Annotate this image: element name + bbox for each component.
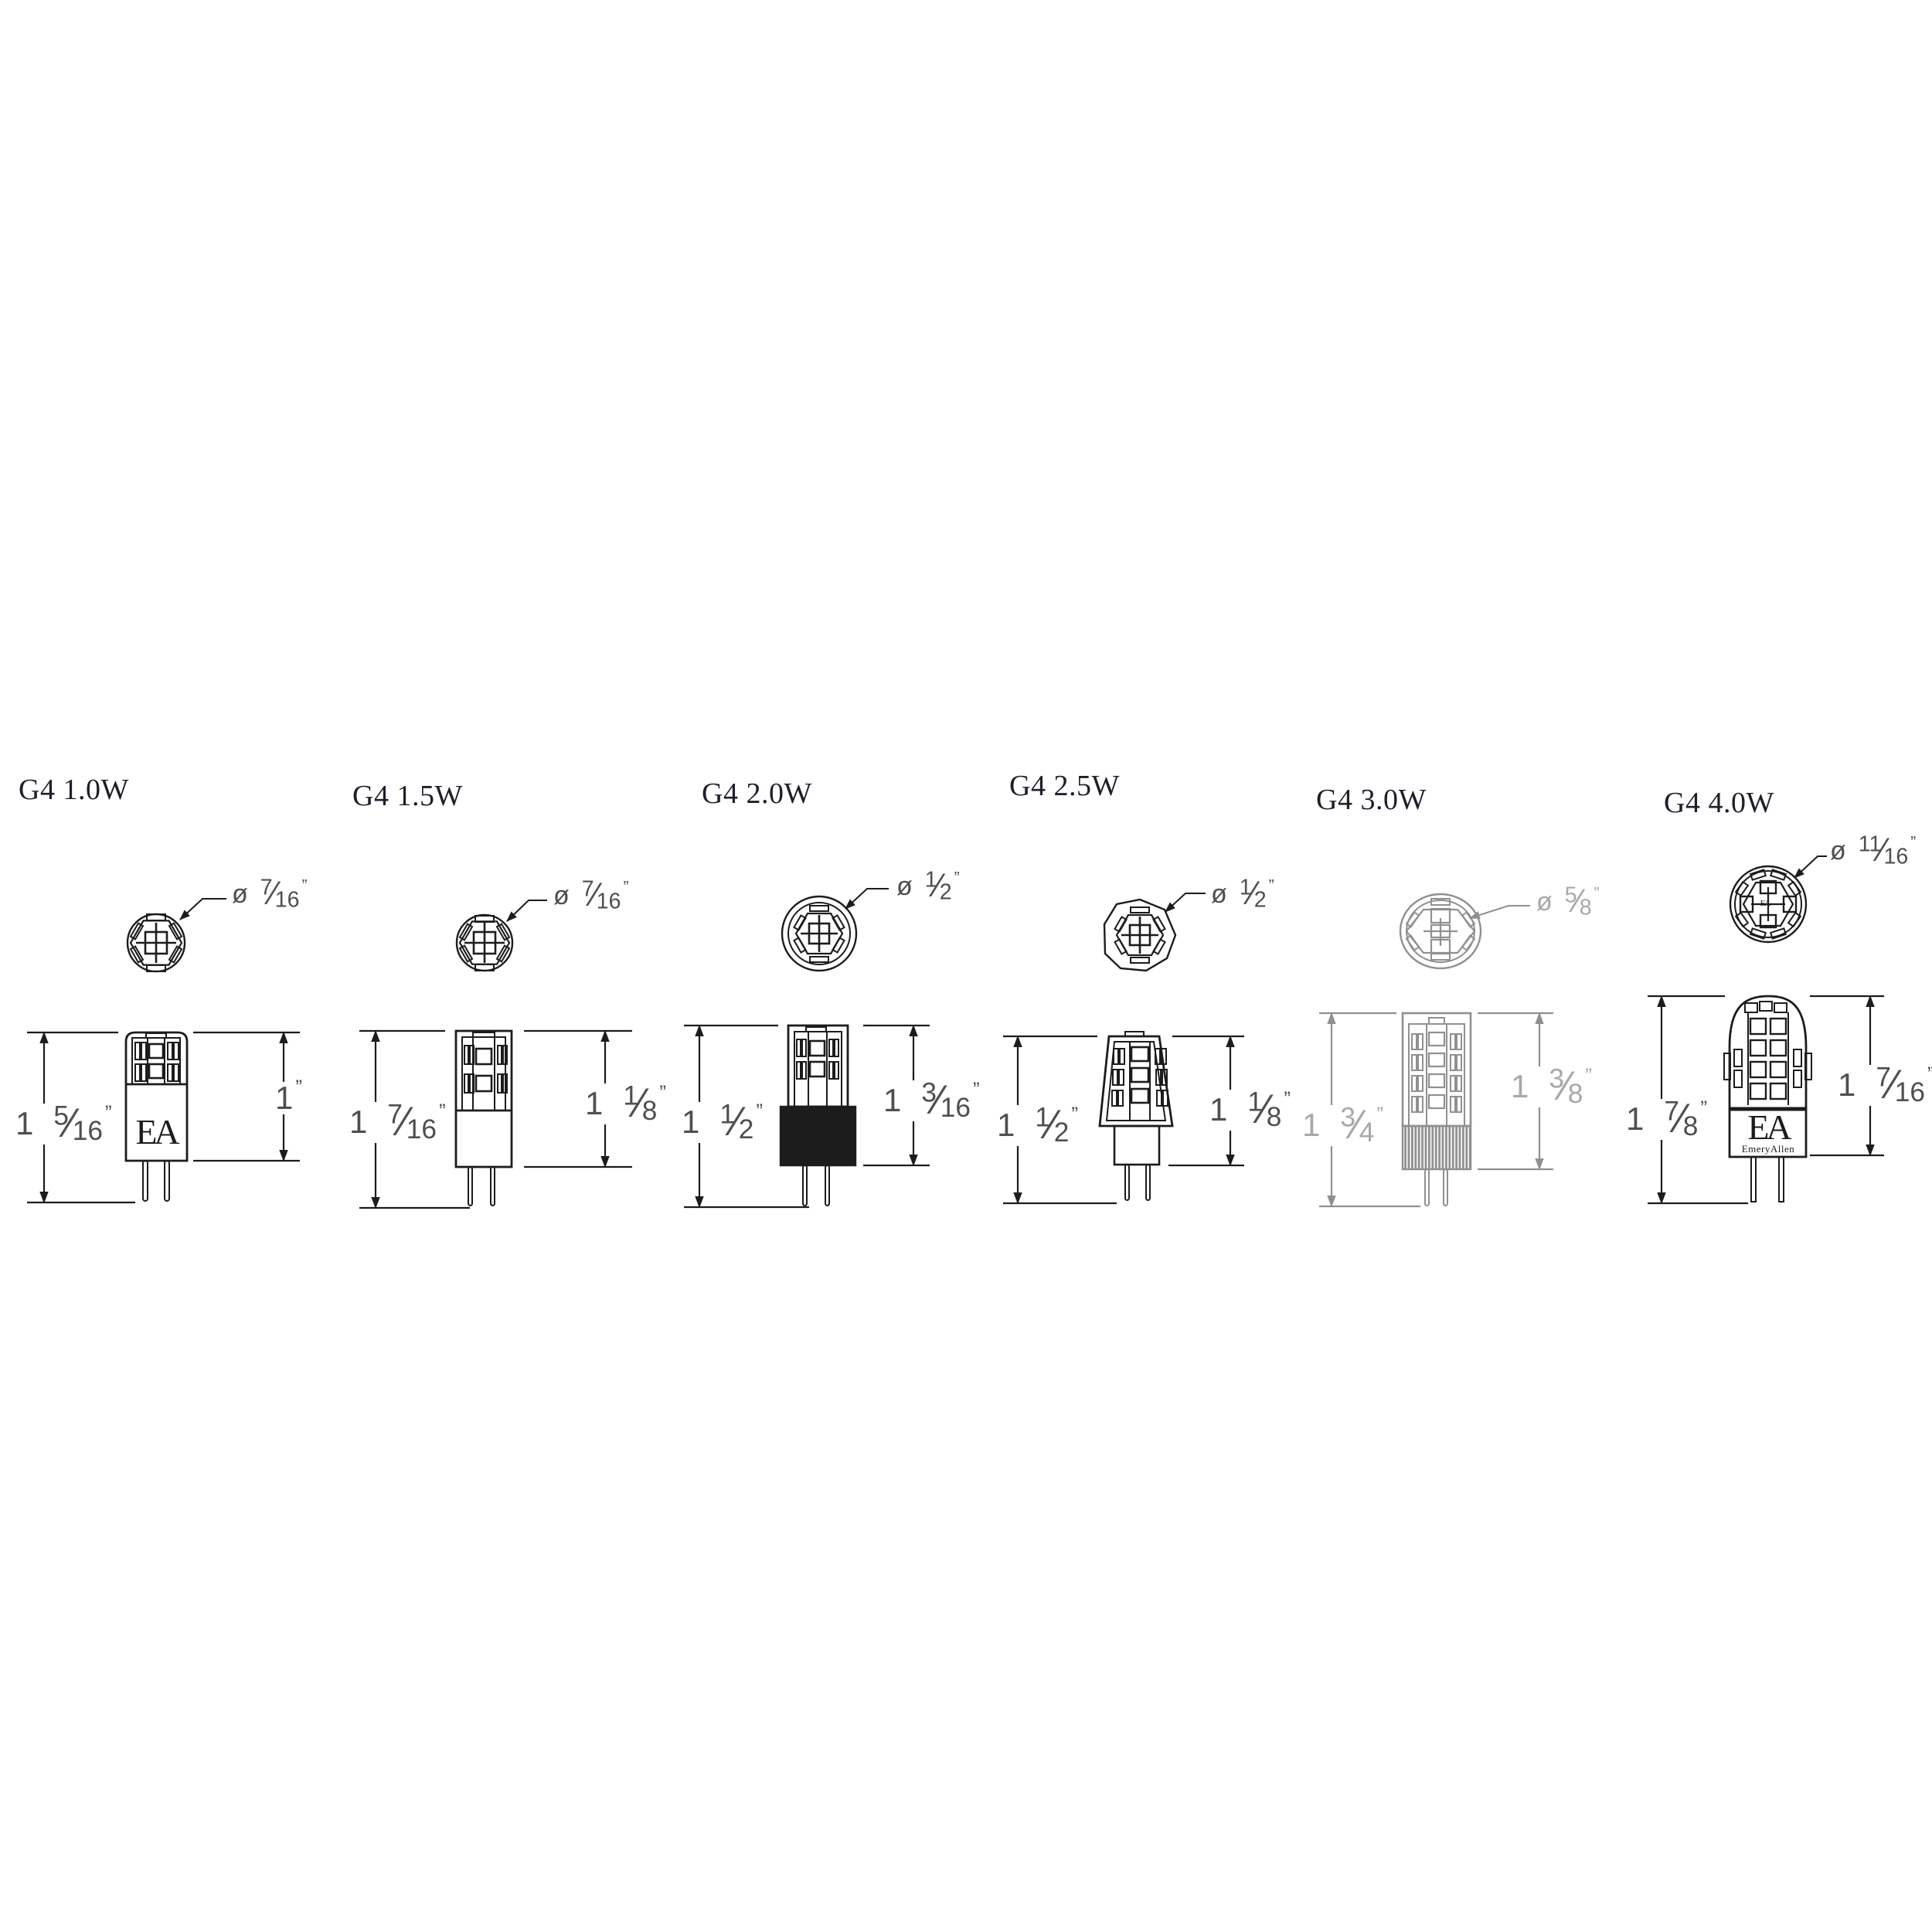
- top-view-drawing: [128, 914, 185, 971]
- side-view-drawing: [456, 1031, 512, 1206]
- diameter-label: ø 1⁄2 ”: [893, 870, 963, 903]
- bulb-pin: [1751, 1157, 1756, 1202]
- bulb-drawing: [340, 811, 680, 1244]
- top-view-drawing: [1104, 900, 1175, 971]
- bulb-pin: [468, 1167, 472, 1206]
- diameter-label: ø 7⁄16 ”: [229, 878, 311, 911]
- page-title: G4 2.5W: [1009, 769, 1120, 803]
- body-height-label: 1 3⁄8 ”: [1508, 1066, 1595, 1107]
- diameter-symbol: ø: [1536, 889, 1553, 915]
- top-view-drawing: [457, 915, 512, 971]
- diameter-leader-arrow: [507, 900, 547, 921]
- bulb-pin: [1425, 1169, 1429, 1206]
- diameter-symbol: ø: [232, 881, 248, 907]
- bulb-pin: [1779, 1157, 1784, 1202]
- overall-height-label: 1 7⁄8 ”: [1623, 1099, 1710, 1140]
- technical-drawing-sheet: G4 1.0W: [0, 0, 1932, 1932]
- ea-logo-tiny-text: EA: [1760, 899, 1771, 908]
- page-title: G4 1.0W: [19, 773, 129, 807]
- overall-height-label: 1 7⁄16 ”: [346, 1102, 449, 1143]
- ea-logo-text: EA: [135, 1112, 179, 1151]
- ribbed-heatsink-base: [1403, 1126, 1471, 1169]
- diameter-symbol: ø: [553, 883, 570, 909]
- overall-height-label: 1 1⁄2 ”: [679, 1102, 766, 1143]
- diameter-symbol: ø: [1830, 838, 1846, 864]
- diameter-symbol: ø: [896, 873, 913, 900]
- body-height-label: 1 ”: [272, 1082, 305, 1114]
- body-height-label: 1 3⁄16 ”: [880, 1080, 983, 1121]
- bulb-pin: [491, 1167, 495, 1206]
- ribbed-heatsink-base: [781, 1107, 855, 1165]
- side-view-drawing: [1403, 1013, 1471, 1206]
- overall-height-label: 1 5⁄16 ”: [12, 1104, 115, 1145]
- page-title: G4 2.0W: [702, 777, 812, 811]
- diameter-leader-arrow: [1470, 906, 1530, 918]
- bulb-pin: [1444, 1169, 1447, 1206]
- top-view-drawing: [782, 896, 856, 971]
- top-view-drawing: [1400, 894, 1481, 968]
- bulb-pin: [803, 1165, 807, 1206]
- diameter-label: ø 5⁄8 ”: [1533, 886, 1603, 919]
- diameter-label: ø 1⁄2 ”: [1208, 878, 1277, 911]
- diameter-label: ø 11⁄16 ”: [1827, 835, 1919, 868]
- side-view-drawing: [1100, 1032, 1172, 1200]
- bulb-drawing: EA: [0, 811, 340, 1244]
- bulb-drawing: EA: [1623, 811, 1932, 1244]
- diameter-leader-arrow: [180, 899, 226, 920]
- ea-logo-text: EA: [1747, 1107, 1791, 1147]
- emeryallen-logo-text: EmeryAllen: [1742, 1143, 1795, 1155]
- side-view-drawing: EA EmeryAllen: [1724, 996, 1811, 1202]
- side-view-drawing: [781, 1026, 855, 1206]
- diameter-leader-arrow: [845, 889, 889, 909]
- overall-height-label: 1 3⁄4 ”: [1299, 1105, 1386, 1146]
- body-height-label: 1 7⁄16 ”: [1835, 1065, 1932, 1106]
- overall-height-label: 1 1⁄2 ”: [994, 1105, 1081, 1146]
- bulb-pin: [1125, 1165, 1129, 1200]
- diameter-symbol: ø: [1211, 881, 1227, 907]
- diameter-leader-arrow: [1165, 893, 1206, 912]
- body-height-label: 1 1⁄8 ”: [582, 1083, 669, 1124]
- bulb-drawing: [1298, 811, 1631, 1244]
- body-height-label: 1 1⁄8 ”: [1206, 1090, 1294, 1131]
- bulb-pin: [165, 1161, 169, 1201]
- bulb-pin: [825, 1165, 829, 1206]
- bulb-pin: [1146, 1165, 1150, 1200]
- bulb-pin: [143, 1161, 148, 1201]
- page-title: G4 1.5W: [352, 779, 463, 813]
- diameter-label: ø 7⁄16 ”: [550, 879, 632, 913]
- side-view-drawing: EA: [126, 1032, 187, 1201]
